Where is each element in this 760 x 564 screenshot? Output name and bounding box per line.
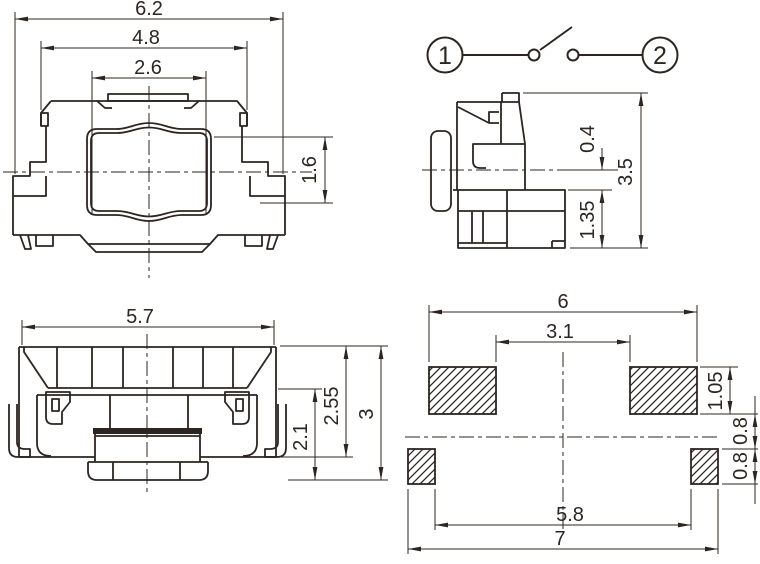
dim-text-2-55: 2.55 — [321, 387, 343, 426]
switch-symbol — [463, 27, 643, 61]
dim-rear-body-width: 5.7 — [22, 306, 274, 345]
terminal-2-label: 2 — [653, 42, 667, 70]
circuit-diagram: 1 2 — [428, 27, 678, 73]
pad-bottom-left — [408, 449, 435, 484]
dim-text-5-8: 5.8 — [556, 504, 584, 526]
dim-side-center-to-base: 0.4 — [568, 125, 612, 190]
rear-view: 5.7 2.1 2.55 3 — [9, 306, 388, 496]
pcb-layout: 6 3.1 1.05 0.8 0.8 — [405, 291, 758, 554]
front-view-centerlines — [3, 86, 312, 278]
dim-text-3-5: 3.5 — [615, 158, 637, 186]
dim-text-1-6: 1.6 — [299, 156, 321, 184]
dim-text-3-1: 3.1 — [546, 321, 574, 343]
dim-text-7: 7 — [554, 528, 565, 550]
dim-side-base-height: 1.35 — [577, 190, 602, 248]
dim-text-0-4: 0.4 — [577, 125, 599, 153]
dim-rear-inner-height: 2.1 — [278, 389, 322, 480]
dim-text-5-7: 5.7 — [126, 306, 154, 328]
dim-text-0-8-lower: 0.8 — [730, 452, 752, 480]
side-view: 3.5 0.4 1.35 — [422, 93, 648, 248]
pad-top-right — [630, 367, 697, 414]
dim-text-6: 6 — [557, 291, 568, 313]
technical-drawing-page: 6.2 4.8 2.6 1.6 1 2 — [0, 0, 760, 564]
dim-text-6-2: 6.2 — [135, 0, 163, 20]
dim-lower-gap: 0.8 — [722, 449, 758, 504]
actuator-seam-band — [93, 428, 202, 434]
pad-bottom-right — [691, 449, 718, 484]
pad-top-left — [429, 367, 496, 414]
dim-text-1-35: 1.35 — [577, 201, 599, 240]
dim-text-4-8: 4.8 — [132, 27, 160, 49]
dim-upper-gap: 0.8 — [722, 396, 758, 449]
dim-text-0-8-upper: 0.8 — [730, 417, 752, 445]
front-view: 6.2 4.8 2.6 1.6 — [3, 0, 333, 278]
dim-text-3: 3 — [356, 408, 378, 419]
terminal-1-label: 1 — [438, 42, 452, 70]
dim-text-2-1: 2.1 — [290, 423, 312, 451]
dim-front-button-height: 1.6 — [214, 137, 333, 203]
dim-text-1-05: 1.05 — [705, 372, 727, 411]
tact-switch-drawing: 6.2 4.8 2.6 1.6 1 2 — [0, 0, 760, 564]
dim-pad-height: 1.05 — [700, 367, 758, 414]
dim-text-2-6: 2.6 — [134, 57, 162, 79]
